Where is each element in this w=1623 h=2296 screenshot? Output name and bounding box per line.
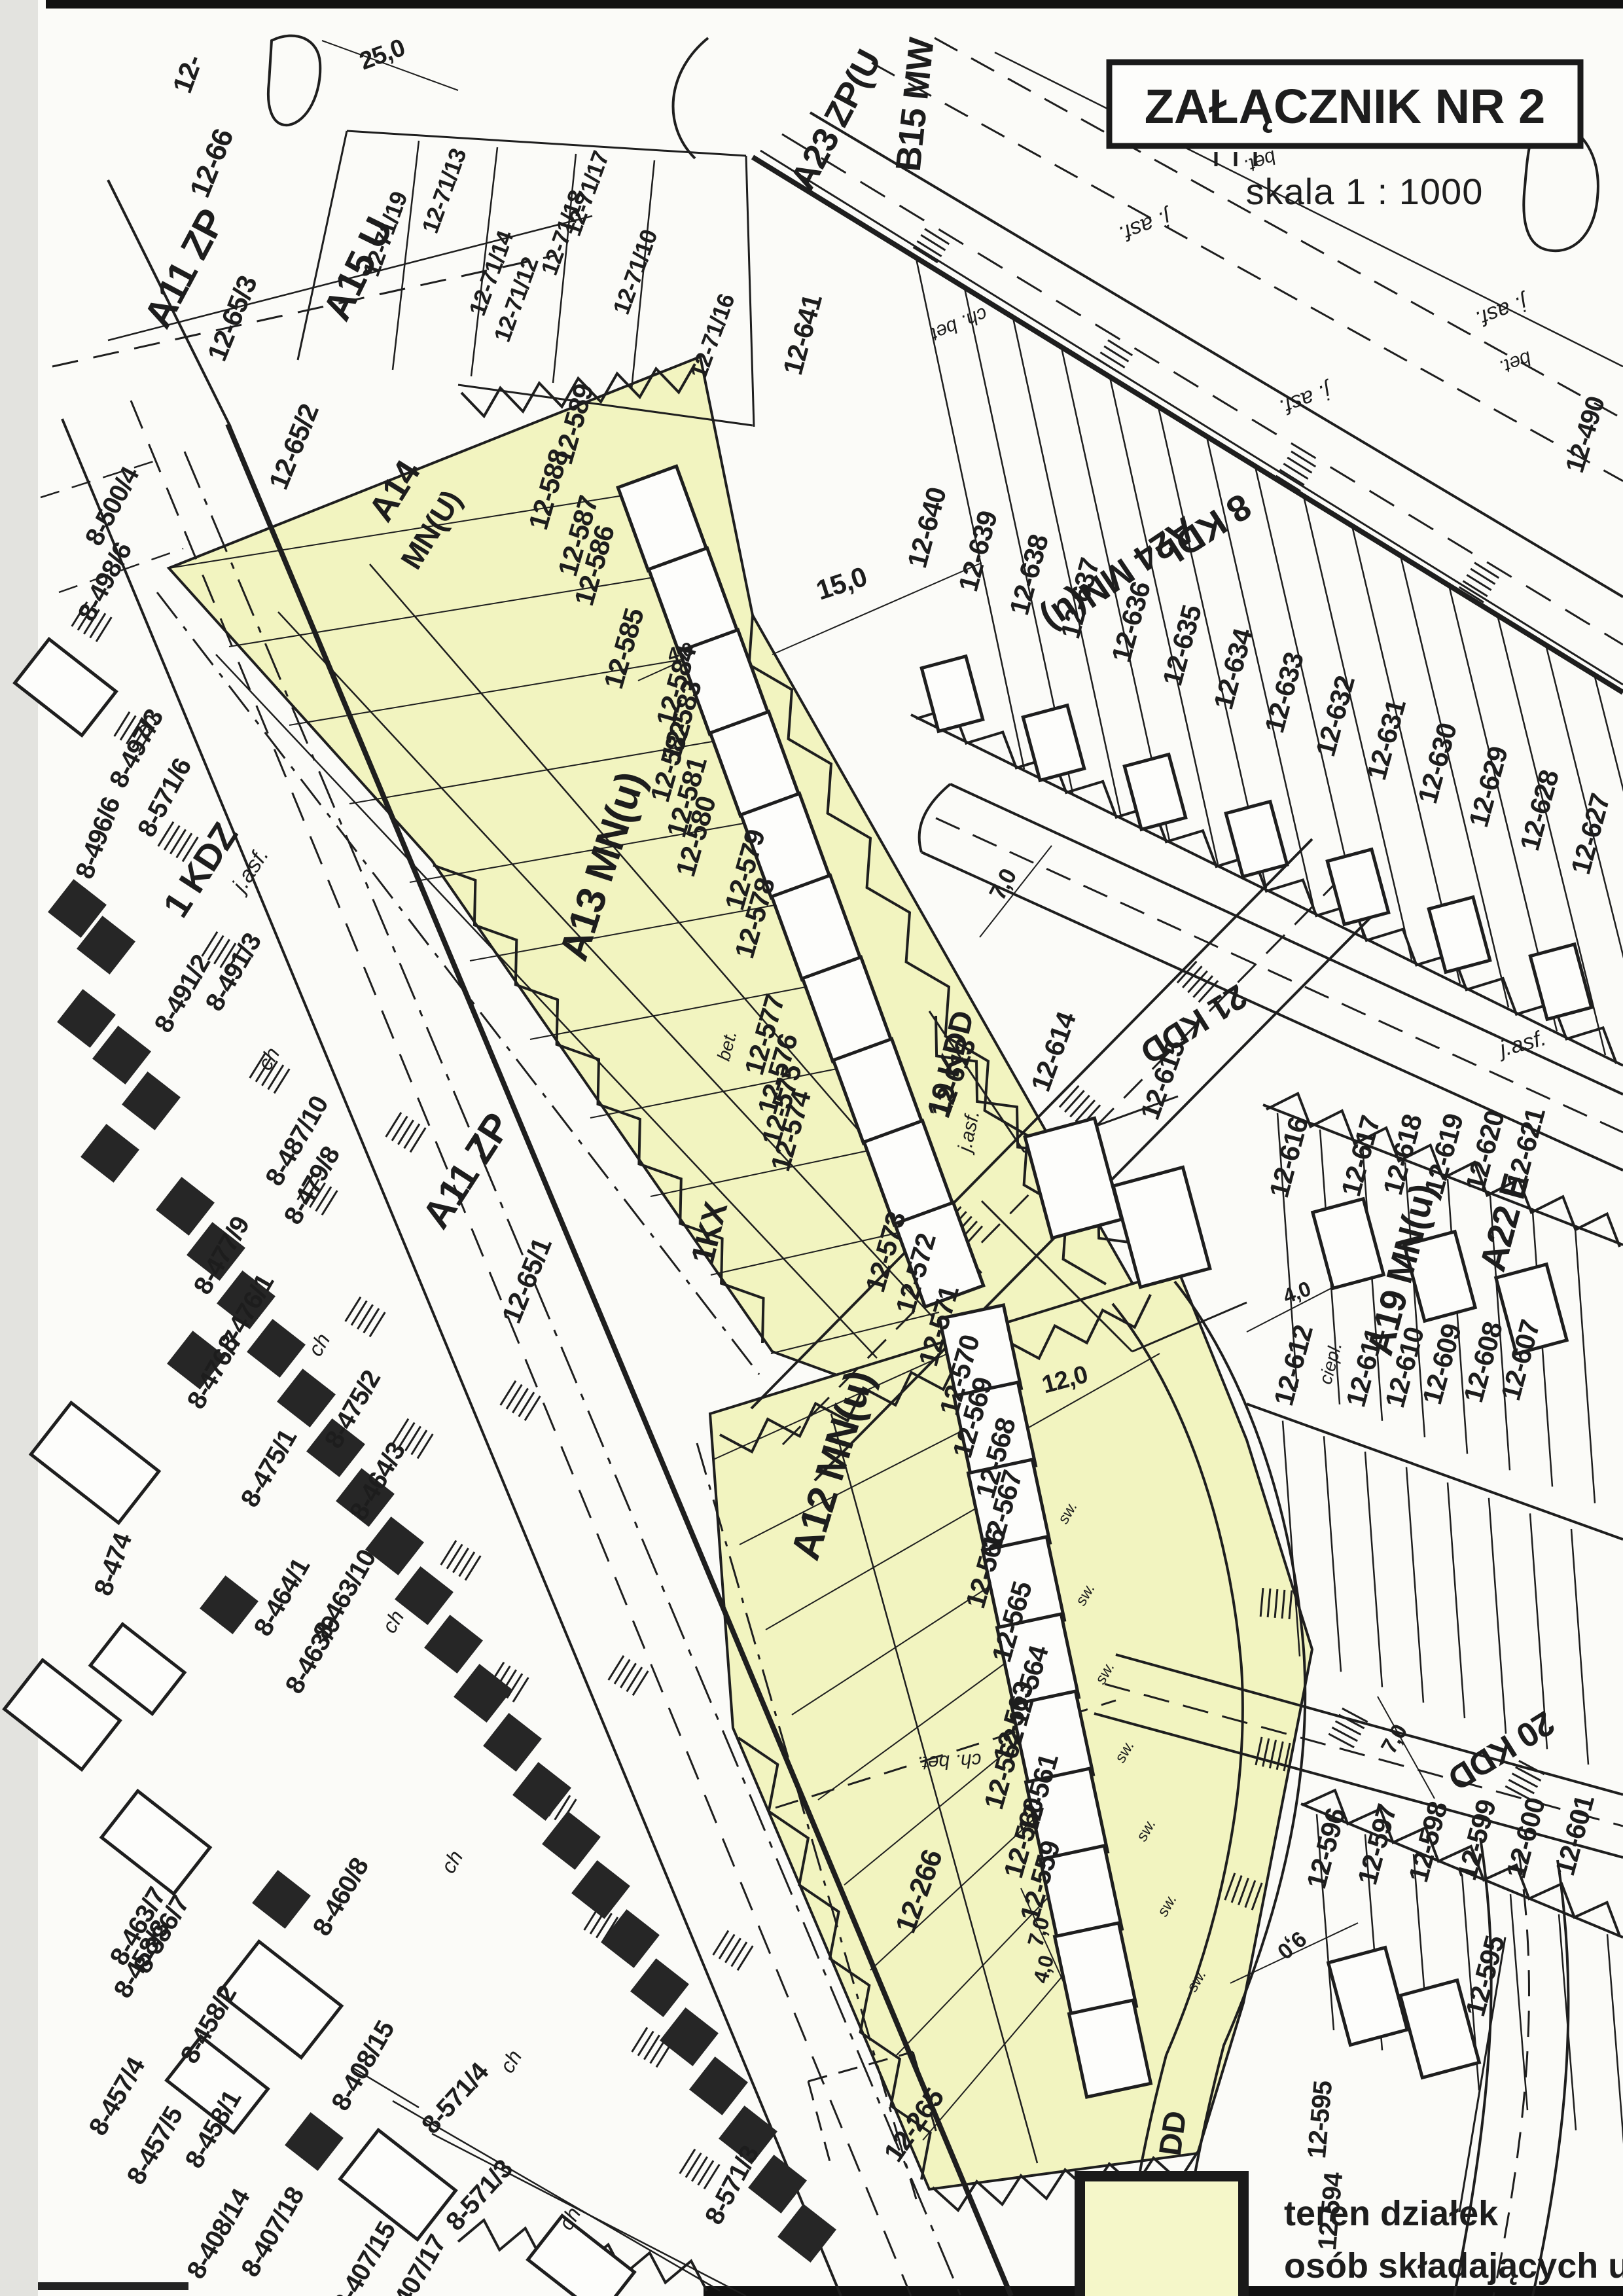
legend-line2: osób składających uwag [1284,2246,1623,2286]
scan-edge-left [0,0,38,2296]
map-scale: skala 1 : 1000 [1246,171,1484,212]
legend-line1: teren działek [1284,2194,1499,2233]
map-label-a-157: ch. bet. [916,1749,982,1774]
scanned-map-page: A11 ZPA15 UA14MN(U)A13 MN(u)A11 ZPA12 MN… [0,0,1623,2296]
legend-swatch [1080,2176,1243,2296]
zoning-map: A11 ZPA15 UA14MN(U)A13 MN(u)A11 ZPA12 MN… [0,0,1623,2296]
scan-bar-bottom-left [38,2282,188,2290]
attachment-title: ZAŁĄCZNIK NR 2 [1145,79,1546,134]
scan-bar-top [46,0,1623,9]
map-label-rd-18: DD [1153,2109,1194,2158]
